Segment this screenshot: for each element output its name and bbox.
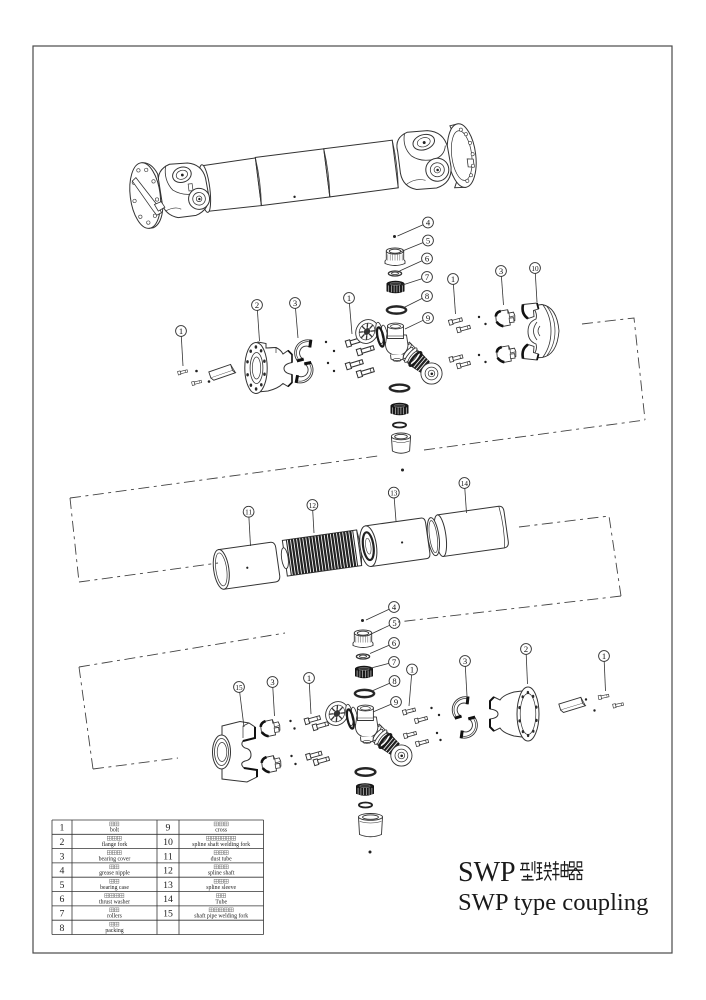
svg-text:spline shaft welding fork: spline shaft welding fork: [192, 841, 250, 848]
svg-text:3: 3: [499, 266, 503, 276]
svg-text:9: 9: [394, 697, 398, 707]
svg-text:14: 14: [461, 480, 469, 488]
svg-text:4: 4: [60, 866, 65, 877]
svg-text:2: 2: [524, 644, 528, 654]
svg-text:spline sleeve: spline sleeve: [206, 885, 236, 891]
svg-text:1: 1: [307, 673, 311, 683]
svg-text:1: 1: [451, 274, 455, 284]
svg-text:15: 15: [235, 684, 243, 692]
svg-text:12: 12: [309, 502, 317, 510]
svg-text:6: 6: [425, 254, 430, 264]
svg-text:bearing cover: bearing cover: [99, 856, 131, 862]
svg-text:bearing case: bearing case: [100, 885, 129, 891]
svg-text:13: 13: [390, 490, 398, 498]
svg-text:packing: packing: [105, 928, 123, 934]
svg-text:11: 11: [163, 851, 173, 862]
svg-text:6: 6: [392, 638, 397, 648]
svg-text:1: 1: [410, 665, 414, 675]
svg-text:11: 11: [245, 509, 252, 517]
svg-text:dust tube: dust tube: [211, 856, 233, 862]
svg-text:8: 8: [425, 291, 429, 301]
svg-text:SWP type coupling: SWP type coupling: [458, 889, 648, 916]
svg-text:5: 5: [426, 236, 430, 246]
svg-text:15: 15: [163, 909, 173, 920]
svg-text:cross: cross: [215, 828, 228, 834]
svg-text:9: 9: [426, 313, 430, 323]
svg-text:2: 2: [60, 837, 65, 848]
svg-text:1: 1: [602, 651, 606, 661]
svg-text:shaft pipe welding fork: shaft pipe welding fork: [194, 913, 248, 920]
svg-text:3: 3: [463, 656, 467, 666]
svg-text:3: 3: [293, 298, 297, 308]
svg-text:6: 6: [60, 894, 65, 905]
svg-text:1: 1: [347, 293, 351, 303]
svg-text:2: 2: [255, 300, 259, 310]
svg-text:grease nipple: grease nipple: [99, 871, 130, 877]
svg-text:12: 12: [163, 866, 173, 877]
svg-text:bolt: bolt: [110, 828, 119, 834]
svg-text:4: 4: [392, 602, 397, 612]
svg-text:Tube: Tube: [215, 899, 227, 905]
svg-text:13: 13: [163, 880, 173, 891]
svg-text:14: 14: [163, 894, 173, 905]
svg-text:spline shaft: spline shaft: [208, 870, 235, 877]
svg-text:5: 5: [60, 880, 65, 891]
svg-text:1: 1: [179, 326, 183, 336]
svg-text:3: 3: [60, 851, 65, 862]
svg-text:5: 5: [392, 618, 396, 628]
svg-text:10: 10: [163, 837, 173, 848]
svg-text:9: 9: [166, 823, 171, 834]
svg-text:10: 10: [531, 265, 539, 273]
svg-text:7: 7: [392, 657, 397, 667]
svg-text:thrust washer: thrust washer: [99, 899, 130, 905]
svg-text:flange fork: flange fork: [102, 841, 128, 848]
svg-text:SWP: SWP: [458, 857, 516, 888]
svg-text:1: 1: [60, 823, 65, 834]
svg-text:4: 4: [426, 218, 431, 228]
svg-text:rollers: rollers: [107, 914, 123, 920]
svg-text:8: 8: [60, 923, 65, 934]
svg-text:3: 3: [270, 677, 274, 687]
svg-text:8: 8: [392, 676, 396, 686]
svg-text:7: 7: [60, 909, 65, 920]
svg-text:7: 7: [425, 272, 430, 282]
